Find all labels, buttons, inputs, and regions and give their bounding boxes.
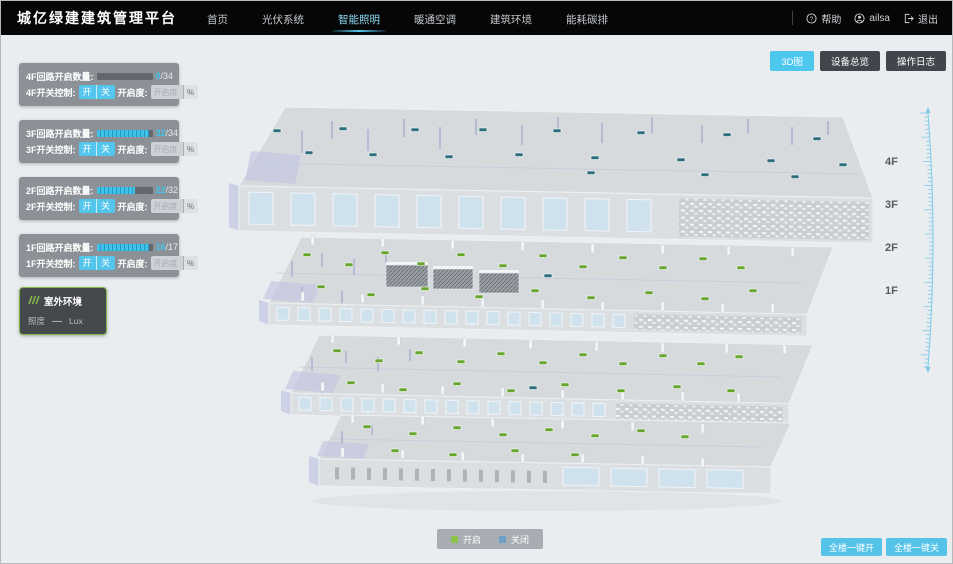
dim-input[interactable] xyxy=(151,256,183,270)
user-name: ailsa xyxy=(869,13,890,24)
bulk-button-1[interactable]: 全楼一键关 xyxy=(886,538,947,556)
svg-text:?: ? xyxy=(810,15,814,22)
circuit-progress-bar xyxy=(97,187,153,194)
dim-label: 开启度: xyxy=(118,143,148,156)
dim-input[interactable] xyxy=(151,199,183,213)
circuit-count-value: 32/34 xyxy=(156,128,179,138)
bulk-action-buttons: 全楼一键开全楼一键关 xyxy=(821,538,947,556)
floor-panel-3F: 3F回路开启数量: 32/34 3F开关控制: 开 关 开启度: % xyxy=(19,120,179,163)
switch-control-label: 4F开关控制: xyxy=(26,86,76,99)
switch-on-button[interactable]: 开 xyxy=(79,199,97,213)
legend-swatch xyxy=(499,536,506,543)
circuit-count-value: 22/32 xyxy=(156,185,179,195)
main-nav: 首页光伏系统智能照明暖通空调建筑环境能耗碳排 xyxy=(205,3,610,34)
top-bar: 城亿绿建建筑管理平台 首页光伏系统智能照明暖通空调建筑环境能耗碳排 ? 帮助 a… xyxy=(1,1,952,35)
main-area: 4F回路开启数量: 0/34 4F开关控制: 开 关 开启度: % 3F回路开启… xyxy=(1,35,952,563)
brand-title: 城亿绿建建筑管理平台 xyxy=(1,8,205,28)
illuminance-label: 照度 xyxy=(28,315,45,327)
illuminance-unit: Lux xyxy=(69,316,83,326)
percent-button[interactable]: % xyxy=(183,85,198,99)
switch-off-button[interactable]: 关 xyxy=(97,199,115,213)
circuit-count-label: 1F回路开启数量: xyxy=(26,241,94,254)
building-floor-3F xyxy=(259,236,833,336)
logout-label: 退出 xyxy=(918,11,938,26)
circuit-count-value: 0/34 xyxy=(156,71,174,81)
logout-icon xyxy=(903,13,914,24)
circuit-count-label: 4F回路开启数量: xyxy=(26,70,94,83)
nav-item-5[interactable]: 能耗碳排 xyxy=(564,3,610,34)
nav-item-0[interactable]: 首页 xyxy=(205,3,230,34)
circuit-progress-bar xyxy=(97,244,153,251)
switch-off-button[interactable]: 关 xyxy=(97,142,115,156)
legend-swatch xyxy=(451,536,458,543)
user-icon xyxy=(854,13,865,24)
help-link[interactable]: ? 帮助 xyxy=(806,11,841,26)
switch-off-button[interactable]: 关 xyxy=(97,85,115,99)
view-button-0[interactable]: 3D图 xyxy=(770,51,814,71)
user-menu[interactable]: ailsa xyxy=(854,13,890,24)
legend-item-1: 关闭 xyxy=(499,533,529,546)
dim-input[interactable] xyxy=(151,142,183,156)
floor-label-4F: 4F xyxy=(885,156,898,168)
app-window: 城亿绿建建筑管理平台 首页光伏系统智能照明暖通空调建筑环境能耗碳排 ? 帮助 a… xyxy=(0,0,953,564)
percent-button[interactable]: % xyxy=(183,256,198,270)
legend-item-0: 开启 xyxy=(451,533,481,546)
dim-input[interactable] xyxy=(151,85,183,99)
circuit-progress-bar xyxy=(97,130,153,137)
dim-label: 开启度: xyxy=(118,257,148,270)
nav-item-4[interactable]: 建筑环境 xyxy=(488,3,534,34)
status-legend: 开启关闭 xyxy=(437,529,543,549)
outdoor-env-icon xyxy=(28,295,40,308)
dim-label: 开启度: xyxy=(118,86,148,99)
floor-label-3F: 3F xyxy=(885,199,898,211)
bulk-button-0[interactable]: 全楼一键开 xyxy=(821,538,882,556)
outdoor-panel-title: 室外环境 xyxy=(44,294,82,308)
floor-label-1F: 1F xyxy=(885,285,898,297)
view-mode-buttons: 3D图设备总览操作日志 xyxy=(770,51,946,71)
switch-on-button[interactable]: 开 xyxy=(79,85,97,99)
floor-label-2F: 2F xyxy=(885,242,898,254)
view-button-2[interactable]: 操作日志 xyxy=(886,51,946,71)
help-icon: ? xyxy=(806,13,817,24)
outdoor-environment-panel: 室外环境 照度 — Lux xyxy=(19,287,107,335)
nav-item-3[interactable]: 暖通空调 xyxy=(412,3,458,34)
floor-panel-1F: 1F回路开启数量: 16/17 1F开关控制: 开 关 开启度: % xyxy=(19,234,179,277)
dim-label: 开启度: xyxy=(118,200,148,213)
switch-on-button[interactable]: 开 xyxy=(79,256,97,270)
floor-panel-2F: 2F回路开启数量: 22/32 2F开关控制: 开 关 开启度: % xyxy=(19,177,179,220)
view-button-1[interactable]: 设备总览 xyxy=(820,51,880,71)
circuit-count-label: 2F回路开启数量: xyxy=(26,184,94,197)
nav-item-1[interactable]: 光伏系统 xyxy=(260,3,306,34)
nav-item-2[interactable]: 智能照明 xyxy=(336,3,382,34)
floor-slider[interactable] xyxy=(915,105,941,375)
top-right-area: ? 帮助 ailsa 退出 xyxy=(792,11,952,26)
circuit-progress-bar xyxy=(97,73,153,80)
percent-button[interactable]: % xyxy=(183,142,198,156)
floor-panel-4F: 4F回路开启数量: 0/34 4F开关控制: 开 关 开启度: % xyxy=(19,63,179,106)
logout-link[interactable]: 退出 xyxy=(903,11,938,26)
floor-control-panels: 4F回路开启数量: 0/34 4F开关控制: 开 关 开启度: % 3F回路开启… xyxy=(19,63,179,291)
building-floor-4F xyxy=(229,107,873,243)
building-floor-2F xyxy=(281,334,813,425)
circuit-count-label: 3F回路开启数量: xyxy=(26,127,94,140)
switch-control-label: 2F开关控制: xyxy=(26,200,76,213)
illuminance-value: — xyxy=(52,316,62,327)
building-floor-1F xyxy=(309,414,791,494)
switch-control-label: 1F开关控制: xyxy=(26,257,76,270)
percent-button[interactable]: % xyxy=(183,199,198,213)
help-label: 帮助 xyxy=(821,11,841,26)
header-divider xyxy=(792,11,793,25)
switch-off-button[interactable]: 关 xyxy=(97,256,115,270)
switch-control-label: 3F开关控制: xyxy=(26,143,76,156)
switch-on-button[interactable]: 开 xyxy=(79,142,97,156)
circuit-count-value: 16/17 xyxy=(156,242,179,252)
